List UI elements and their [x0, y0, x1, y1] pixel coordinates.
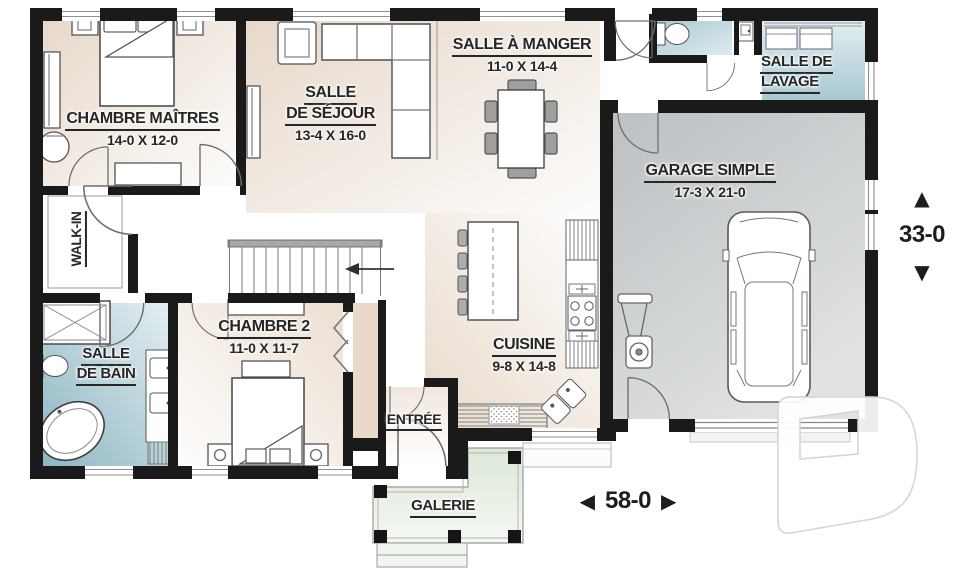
stairs	[228, 240, 394, 296]
walkway	[523, 443, 611, 467]
width-dimension: ◀ 58-0 ▶	[548, 487, 708, 515]
garage-apron	[690, 432, 850, 442]
stove	[568, 296, 596, 330]
car	[723, 212, 815, 402]
floor-plan-drawing	[0, 0, 960, 569]
arrow-right-icon: ▶	[661, 491, 676, 511]
back-door	[615, 21, 652, 58]
dresser	[44, 52, 60, 128]
depth-dimension: ▲ 33-0 ▼	[890, 188, 954, 282]
chair	[485, 133, 497, 154]
window	[85, 466, 133, 479]
window	[318, 466, 352, 479]
toilet	[656, 23, 665, 45]
floor-plan: CHAMBRE MAÎTRES 14-0 X 12-0 SALLE DE SÉJ…	[0, 0, 960, 569]
window	[532, 428, 597, 441]
window	[480, 8, 565, 21]
porch-steps	[377, 543, 467, 555]
arrow-down-icon: ▼	[914, 262, 929, 282]
tv-unit	[247, 86, 260, 158]
stool	[458, 299, 467, 315]
dryer	[800, 28, 832, 49]
window	[865, 180, 878, 210]
window	[865, 62, 878, 100]
dining-table	[498, 90, 544, 168]
chair	[545, 133, 557, 154]
window	[62, 8, 100, 21]
window	[192, 466, 228, 479]
chair	[508, 168, 536, 178]
chair	[508, 80, 536, 90]
width-value: 58-0	[605, 487, 651, 515]
chair	[545, 101, 557, 122]
window	[697, 8, 722, 21]
headboard	[242, 361, 290, 377]
powder-door	[707, 63, 735, 91]
garage-door	[695, 419, 848, 432]
walkin-shelving	[48, 196, 122, 288]
arrow-up-icon: ▲	[914, 188, 929, 208]
stool	[458, 253, 467, 269]
window	[177, 8, 215, 21]
window	[293, 8, 390, 21]
depth-value: 33-0	[899, 221, 945, 249]
chair	[485, 101, 497, 122]
washer	[766, 28, 797, 49]
fridge	[566, 220, 598, 260]
stool	[458, 276, 467, 292]
arrow-left-icon: ◀	[580, 491, 595, 511]
island	[468, 222, 518, 320]
stool	[458, 230, 467, 246]
window	[865, 214, 878, 250]
bench	[115, 163, 181, 185]
